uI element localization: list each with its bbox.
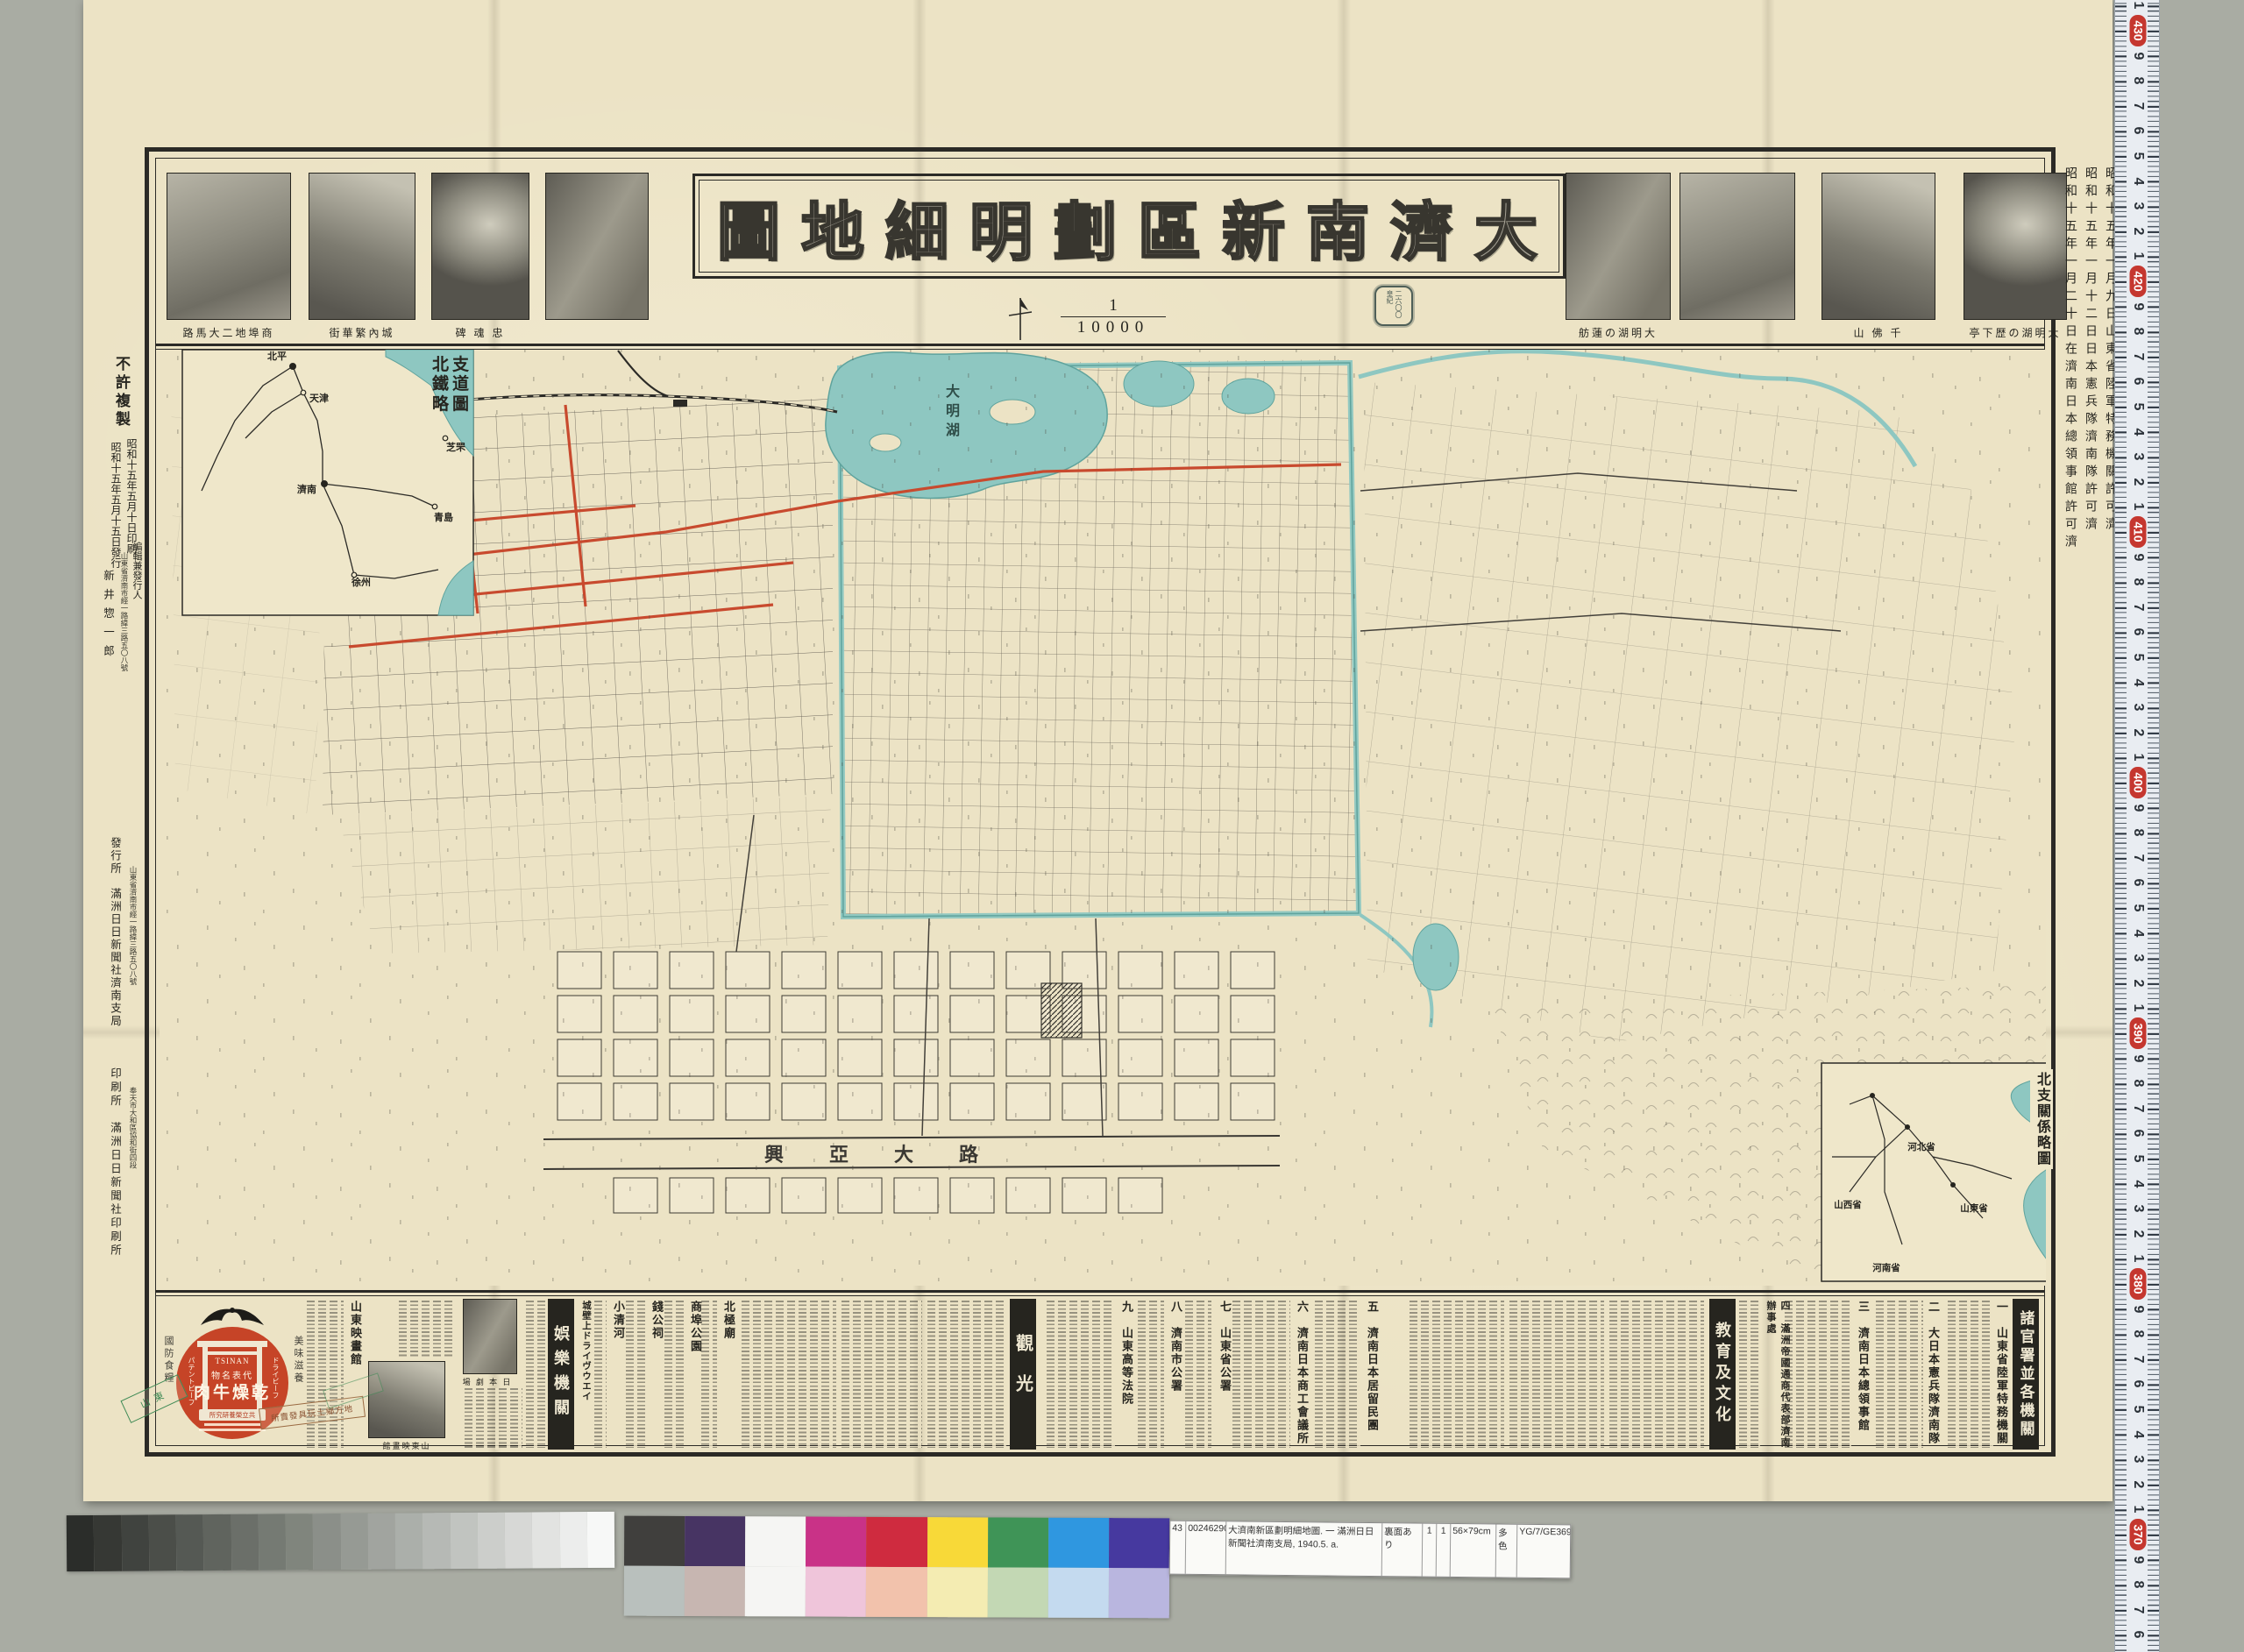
band-item: 錢公祠: [649, 1301, 665, 1450]
ruler-cm-digit: 7: [2130, 1606, 2146, 1613]
ruler-cm-digit: 6: [2130, 1380, 2146, 1388]
library-catalog-label: 43 002462901 大濟南新區劃明細地圖. 一 滿洲日日新聞社濟南支局, …: [1169, 1521, 1572, 1579]
grayscale-step: [423, 1513, 451, 1569]
ruler-cm-digit: 9: [2130, 804, 2146, 812]
photo-lixia-pavilion: [1963, 173, 2067, 320]
ruler-cm-digit: 5: [2130, 152, 2146, 160]
ruler-cm-digit: 2: [2130, 728, 2146, 736]
ruler-cm-digit: 9: [2130, 1556, 2146, 1563]
ad-note-right: ドライビーフ: [271, 1357, 280, 1399]
band-item: 北極廟: [721, 1301, 737, 1450]
inset-se-title: 北支關係略圖: [2030, 1069, 2053, 1169]
commemorative-seal: 皇紀 二六〇〇: [1374, 286, 1413, 326]
ruler-cm-digit: 2: [2130, 1480, 2146, 1488]
color-checker-cell: [988, 1517, 1048, 1567]
header-separator-rule: [156, 344, 2044, 350]
grayscale-step: [587, 1512, 615, 1568]
catalog-cell: 002462901: [1186, 1521, 1227, 1574]
svg-text:青島: 青島: [434, 511, 453, 523]
printed-date: 昭和十五年五月十日印刷: [124, 438, 139, 554]
ruler-cm-digit: 1: [2130, 252, 2146, 260]
catalog-cell: 56×79cm: [1451, 1524, 1497, 1578]
body-text-column: [626, 1301, 645, 1448]
band-item: 二 大日本憲兵隊濟南隊: [1925, 1301, 1942, 1450]
ruler-cm-digit: 8: [2130, 328, 2146, 336]
photo-caption: 路馬大二地埠商: [167, 325, 291, 340]
color-checker-cell: [806, 1567, 866, 1617]
grayscale-step: [313, 1514, 341, 1570]
color-checker-cell: [685, 1566, 745, 1616]
scale-numerator: 1: [1047, 296, 1179, 316]
catalog-cell: 裏面あり: [1382, 1523, 1424, 1576]
catalog-cell: 多色: [1496, 1525, 1518, 1578]
photo-lake-boats: [1566, 173, 1671, 320]
ruler-cm-digit: 8: [2130, 1330, 2146, 1338]
ruler-cm-digit: 7: [2130, 1355, 2146, 1363]
body-text-column: [594, 1301, 607, 1448]
color-checker-cell: [745, 1516, 806, 1566]
body-text-column: [465, 1388, 522, 1450]
color-checker-cell: [1048, 1518, 1109, 1568]
ruler-cm-digit: 5: [2130, 904, 2146, 912]
north-arrow-icon: [1005, 293, 1036, 344]
ad-seller: 所究研養榮立共: [199, 1409, 266, 1421]
body-text-column: [841, 1301, 922, 1448]
svg-text:北平: 北平: [267, 350, 287, 362]
body-text-column: [1509, 1301, 1604, 1448]
body-text-column: [526, 1301, 545, 1448]
ruler-cm-digit: 4: [2130, 1430, 2146, 1438]
ruler-cm-digit: 5: [2130, 654, 2146, 662]
ruler-cm-digit: 6: [2130, 127, 2146, 135]
photo-qianfo-mountain: [1821, 173, 1935, 320]
grayscale-step: [532, 1512, 560, 1568]
ruler-cm-digit: 3: [2130, 954, 2146, 962]
ruler-cm-digit: 3: [2130, 1205, 2146, 1213]
scale-denominator: 10000: [1047, 318, 1179, 337]
svg-text:徐州: 徐州: [351, 576, 371, 588]
ruler-cm-digit: 7: [2130, 352, 2146, 360]
body-text-column: [1739, 1301, 1760, 1448]
catalog-cell: 1: [1423, 1524, 1438, 1577]
ruler-cm-digit: 8: [2130, 1581, 2146, 1589]
ruler-cm-digit: 8: [2130, 1080, 2146, 1088]
ruler-cm-badge: 370: [2130, 1519, 2147, 1550]
photo-lake-view: [1679, 173, 1795, 320]
band-item: 五 濟南日本居留民團: [1364, 1301, 1381, 1450]
body-text-column: [1785, 1301, 1851, 1448]
ruler-cm-badge: 400: [2130, 767, 2147, 798]
color-checker-cell: [685, 1516, 745, 1566]
grayscale-step: [478, 1513, 506, 1569]
ruler-cm-badge: 430: [2130, 15, 2147, 46]
map-title: 圖地細明劃區新南濟大: [699, 181, 1559, 273]
ruler-cm-digit: 5: [2130, 1406, 2146, 1414]
ruler-cm-digit: 4: [2130, 1180, 2146, 1188]
grayscale-calibration-bar: [67, 1512, 614, 1571]
color-checker-cell: [866, 1517, 927, 1567]
band-item: 七 山東省公署: [1217, 1301, 1233, 1450]
grayscale-step: [395, 1513, 423, 1569]
ruler-cm-digit: 1: [2130, 1004, 2146, 1012]
grayscale-step: [121, 1515, 149, 1571]
body-text-column: [742, 1301, 836, 1448]
printer: 印刷所 滿洲日日新聞社印刷所: [107, 1067, 124, 1258]
publisher: 發行所 滿洲日日新聞社濟南支局: [107, 837, 124, 1028]
body-text-column: [1315, 1301, 1360, 1448]
scanned-map-page: 路馬大二地埠商 街華繁內城 碑 魂 忠 圖地細明劃區新南濟大 1 10000 皇…: [0, 0, 2244, 1652]
seal-text: 皇紀: [1386, 290, 1393, 324]
body-text-column: [1185, 1301, 1211, 1448]
xingya-road-label: 興亞大路: [764, 1139, 1024, 1167]
section-header-entertainment: 娯樂機關: [548, 1299, 574, 1450]
editor-address: 山東省濟南市經一路緯三路五〇八號: [119, 552, 130, 671]
band-photo-shandong-cinema: [368, 1361, 445, 1438]
ruler-cm-digit: 3: [2130, 1456, 2146, 1464]
color-checker-cell: [1109, 1518, 1169, 1568]
band-photo-japan-theater: [463, 1299, 517, 1374]
color-checker-cell: [745, 1566, 806, 1616]
ruler-cm-digit: 2: [2130, 1230, 2146, 1237]
grayscale-step: [67, 1515, 95, 1571]
band-item: 一 山東省陸軍特務機關: [1993, 1301, 2010, 1450]
grayscale-step: [231, 1514, 259, 1570]
grayscale-step: [203, 1514, 231, 1570]
photo-caption: 舫蓮の湖明大: [1566, 325, 1671, 340]
svg-text:河北省: 河北省: [1907, 1141, 1935, 1152]
svg-text:河南省: 河南省: [1872, 1262, 1900, 1273]
grayscale-step: [259, 1514, 287, 1570]
section-header-education: 教育及文化: [1709, 1299, 1736, 1450]
svg-text:濟南: 濟南: [297, 483, 316, 495]
ruler-cm-digit: 9: [2130, 1054, 2146, 1062]
ruler-cm-digit: 9: [2130, 52, 2146, 60]
band-item: 九 山東高等法院: [1118, 1301, 1135, 1450]
body-text-column: [1410, 1301, 1504, 1448]
ruler-cm-digit: 9: [2130, 302, 2146, 310]
photo-caption: 街華繁內城: [309, 325, 415, 340]
body-text-column: [399, 1301, 455, 1357]
color-checker-cell: [1109, 1568, 1169, 1618]
band-item: 商埠公園: [687, 1301, 704, 1450]
ruler-cm-digit: 6: [2130, 1130, 2146, 1138]
band-item: 六 濟南日本商工會議所: [1294, 1301, 1310, 1450]
ad-slogan-right: 美味滋養: [291, 1336, 305, 1385]
photo-caption: 亭下歴の湖明大: [1963, 325, 2067, 340]
torii-gate-beam: [202, 1351, 262, 1355]
ruler-cm-digit: 5: [2130, 403, 2146, 411]
ruler-cm-digit: 1: [2130, 1506, 2146, 1514]
editor-role: 編輯兼發行人: [130, 542, 144, 599]
grayscale-step: [505, 1512, 533, 1568]
catalog-cell: YG/7/GE369/Se: [1517, 1525, 1571, 1578]
body-text-column: [927, 1301, 1006, 1448]
ruler-cm-digit: 6: [2130, 378, 2146, 386]
grayscale-step: [149, 1514, 177, 1570]
city-map-canvas: 北平天津芝罘青島濟南徐州 河北省山西省山東省河南省: [160, 350, 2046, 1286]
editor-name: 新井惣一郎: [100, 570, 117, 664]
color-checker-cell: [987, 1567, 1047, 1617]
no-reproduction-notice: 不許複製: [110, 356, 132, 429]
eagle-icon: [196, 1301, 268, 1330]
body-text-column: [1047, 1301, 1115, 1448]
catalog-cell: 43: [1170, 1521, 1187, 1574]
svg-text:天津: 天津: [309, 392, 329, 404]
ruler-cm-digit: 9: [2130, 553, 2146, 561]
ruler-cm-digit: 4: [2130, 177, 2146, 185]
permit-line: 昭和十五年一月二十日在濟南日本總領事館許可濟: [2061, 167, 2078, 587]
photo-monument: [431, 173, 529, 320]
body-text-column: [1609, 1301, 1704, 1448]
scale-fraction-line: [1061, 316, 1166, 317]
band-item: 三 濟南日本總領事館: [1855, 1301, 1871, 1450]
grayscale-step: [176, 1514, 204, 1570]
ruler-cm-digit: 4: [2130, 678, 2146, 686]
ruler-cm-digit: 4: [2130, 428, 2146, 436]
inset-nw-title: 北支 鐵道 略圖: [428, 356, 477, 415]
photo-caption: 山 佛 千: [1821, 325, 1935, 340]
section-header-sightseeing: 觀光: [1010, 1299, 1036, 1450]
ruler-cm-digit: 1: [2130, 503, 2146, 511]
band-photo-caption: 館畫映東山: [361, 1440, 452, 1451]
catalog-cell: 大濟南新區劃明細地圖. 一 滿洲日日新聞社濟南支局, 1940.5. a.: [1226, 1521, 1383, 1576]
ruler-cm-digit: 8: [2130, 77, 2146, 85]
band-photo-caption: 場 劇 本 日: [444, 1376, 531, 1387]
color-checker-cell: [927, 1517, 988, 1567]
ruler-cm-badge: 420: [2130, 266, 2147, 297]
footer-separator-rule: [156, 1290, 2044, 1296]
band-item: 山東映畫館: [347, 1301, 364, 1379]
seal-text: 二六〇〇: [1395, 290, 1402, 324]
photo-commercial-street: [167, 173, 291, 320]
grayscale-step: [340, 1514, 368, 1570]
band-item: 小清河: [610, 1301, 627, 1450]
color-checker-cell: [866, 1567, 927, 1617]
photo-tower: [545, 173, 649, 320]
ruler-cm-digit: 8: [2130, 829, 2146, 837]
ruler-cm-digit: 1: [2130, 754, 2146, 762]
ruler-cm-digit: 4: [2130, 929, 2146, 937]
grayscale-step: [94, 1515, 122, 1571]
svg-text:山西省: 山西省: [1834, 1199, 1862, 1210]
ruler-cm-digit: 3: [2130, 202, 2146, 210]
ruler-cm-digit: 5: [2130, 1155, 2146, 1163]
catalog-cell: 1: [1437, 1524, 1452, 1577]
censor-permit-notes: 昭和十五年一月九日山東省陸軍特務機關許可濟 昭和十五年一月十二日日本憲兵隊濟南隊…: [2058, 167, 2119, 587]
band-item: 八 濟南市公署: [1168, 1301, 1184, 1450]
color-calibration-checker: [624, 1516, 1169, 1619]
printer-address: 奉天市大和區協和街四段: [128, 1087, 138, 1169]
color-checker-cell: [624, 1566, 685, 1616]
svg-text:山東省: 山東省: [1960, 1202, 1988, 1214]
body-text-column: [1948, 1301, 1993, 1448]
ruler-cm-badge: 390: [2130, 1017, 2147, 1049]
body-text-column: [1876, 1301, 1923, 1448]
ruler-cm-digit: 7: [2130, 854, 2146, 861]
grayscale-step: [559, 1512, 587, 1568]
photo-caption: 碑 魂 忠: [431, 325, 529, 340]
ruler-cm-badge: 380: [2130, 1268, 2147, 1300]
color-checker-cell: [1048, 1568, 1109, 1618]
ruler-cm-digit: 1: [2130, 1255, 2146, 1263]
ruler-cm-digit: 2: [2130, 979, 2146, 987]
measuring-tape-ruler: 1430987654321420987654321410987654321400…: [2114, 0, 2160, 1652]
svg-text:芝罘: 芝罘: [446, 441, 465, 453]
body-text-column: [307, 1301, 344, 1448]
publisher-address: 山東省濟南市經一路緯三路五〇八號: [128, 866, 138, 985]
ad-note-left: パテントビーフ: [187, 1357, 196, 1406]
scale-indicator: 1 10000: [1047, 296, 1179, 337]
ad-fine-print: [199, 1429, 266, 1431]
band-item: 四 滿洲帝國通商代表部濟南辦事處: [1764, 1301, 1792, 1450]
ruler-cm-digit: 6: [2130, 879, 2146, 887]
ruler-cm-digit: 9: [2130, 1305, 2146, 1313]
grayscale-step: [368, 1514, 396, 1570]
daming-lake-label: 大明湖: [940, 384, 961, 442]
ruler-cm-badge: 410: [2130, 516, 2147, 548]
ruler-cm-digit: 6: [2130, 1631, 2146, 1639]
ruler-cm-digit: 3: [2130, 453, 2146, 461]
inset-north-china-relations: 河北省山西省山東省河南省: [1821, 1063, 2046, 1281]
grayscale-step: [286, 1514, 314, 1570]
photo-city-street: [309, 173, 415, 320]
ruler-cm-digit: 8: [2130, 578, 2146, 586]
ruler-cm-digit: 7: [2130, 603, 2146, 611]
body-text-column: [1138, 1301, 1164, 1448]
ruler-labels: 1430987654321420987654321410987654321400…: [2115, 0, 2161, 1652]
ad-fine-print: [204, 1423, 260, 1426]
ruler-cm-digit: 3: [2130, 704, 2146, 712]
ruler-cm-digit: 6: [2130, 628, 2146, 636]
color-checker-cell: [806, 1517, 866, 1567]
color-checker-cell: [927, 1567, 987, 1617]
permit-line: 昭和十五年一月十二日日本憲兵隊濟南隊許可濟: [2081, 167, 2098, 587]
ruler-cm-digit: 1: [2130, 2, 2146, 10]
section-header-offices: 諸官署並各機關: [2013, 1299, 2039, 1450]
band-item: 城壁上ドライヴウエイ: [579, 1301, 593, 1450]
ruler-cm-digit: 2: [2130, 227, 2146, 235]
title-box-inner: 圖地細明劃區新南濟大: [699, 180, 1559, 273]
issued-date: 昭和十五年五月十五日發行: [109, 442, 124, 568]
color-checker-cell: [624, 1516, 685, 1566]
grayscale-step: [450, 1513, 478, 1569]
body-text-column: [664, 1301, 684, 1448]
body-text-column: [1232, 1301, 1290, 1448]
ruler-cm-digit: 7: [2130, 102, 2146, 110]
ruler-cm-digit: 2: [2130, 478, 2146, 486]
ruler-cm-digit: 7: [2130, 1104, 2146, 1112]
